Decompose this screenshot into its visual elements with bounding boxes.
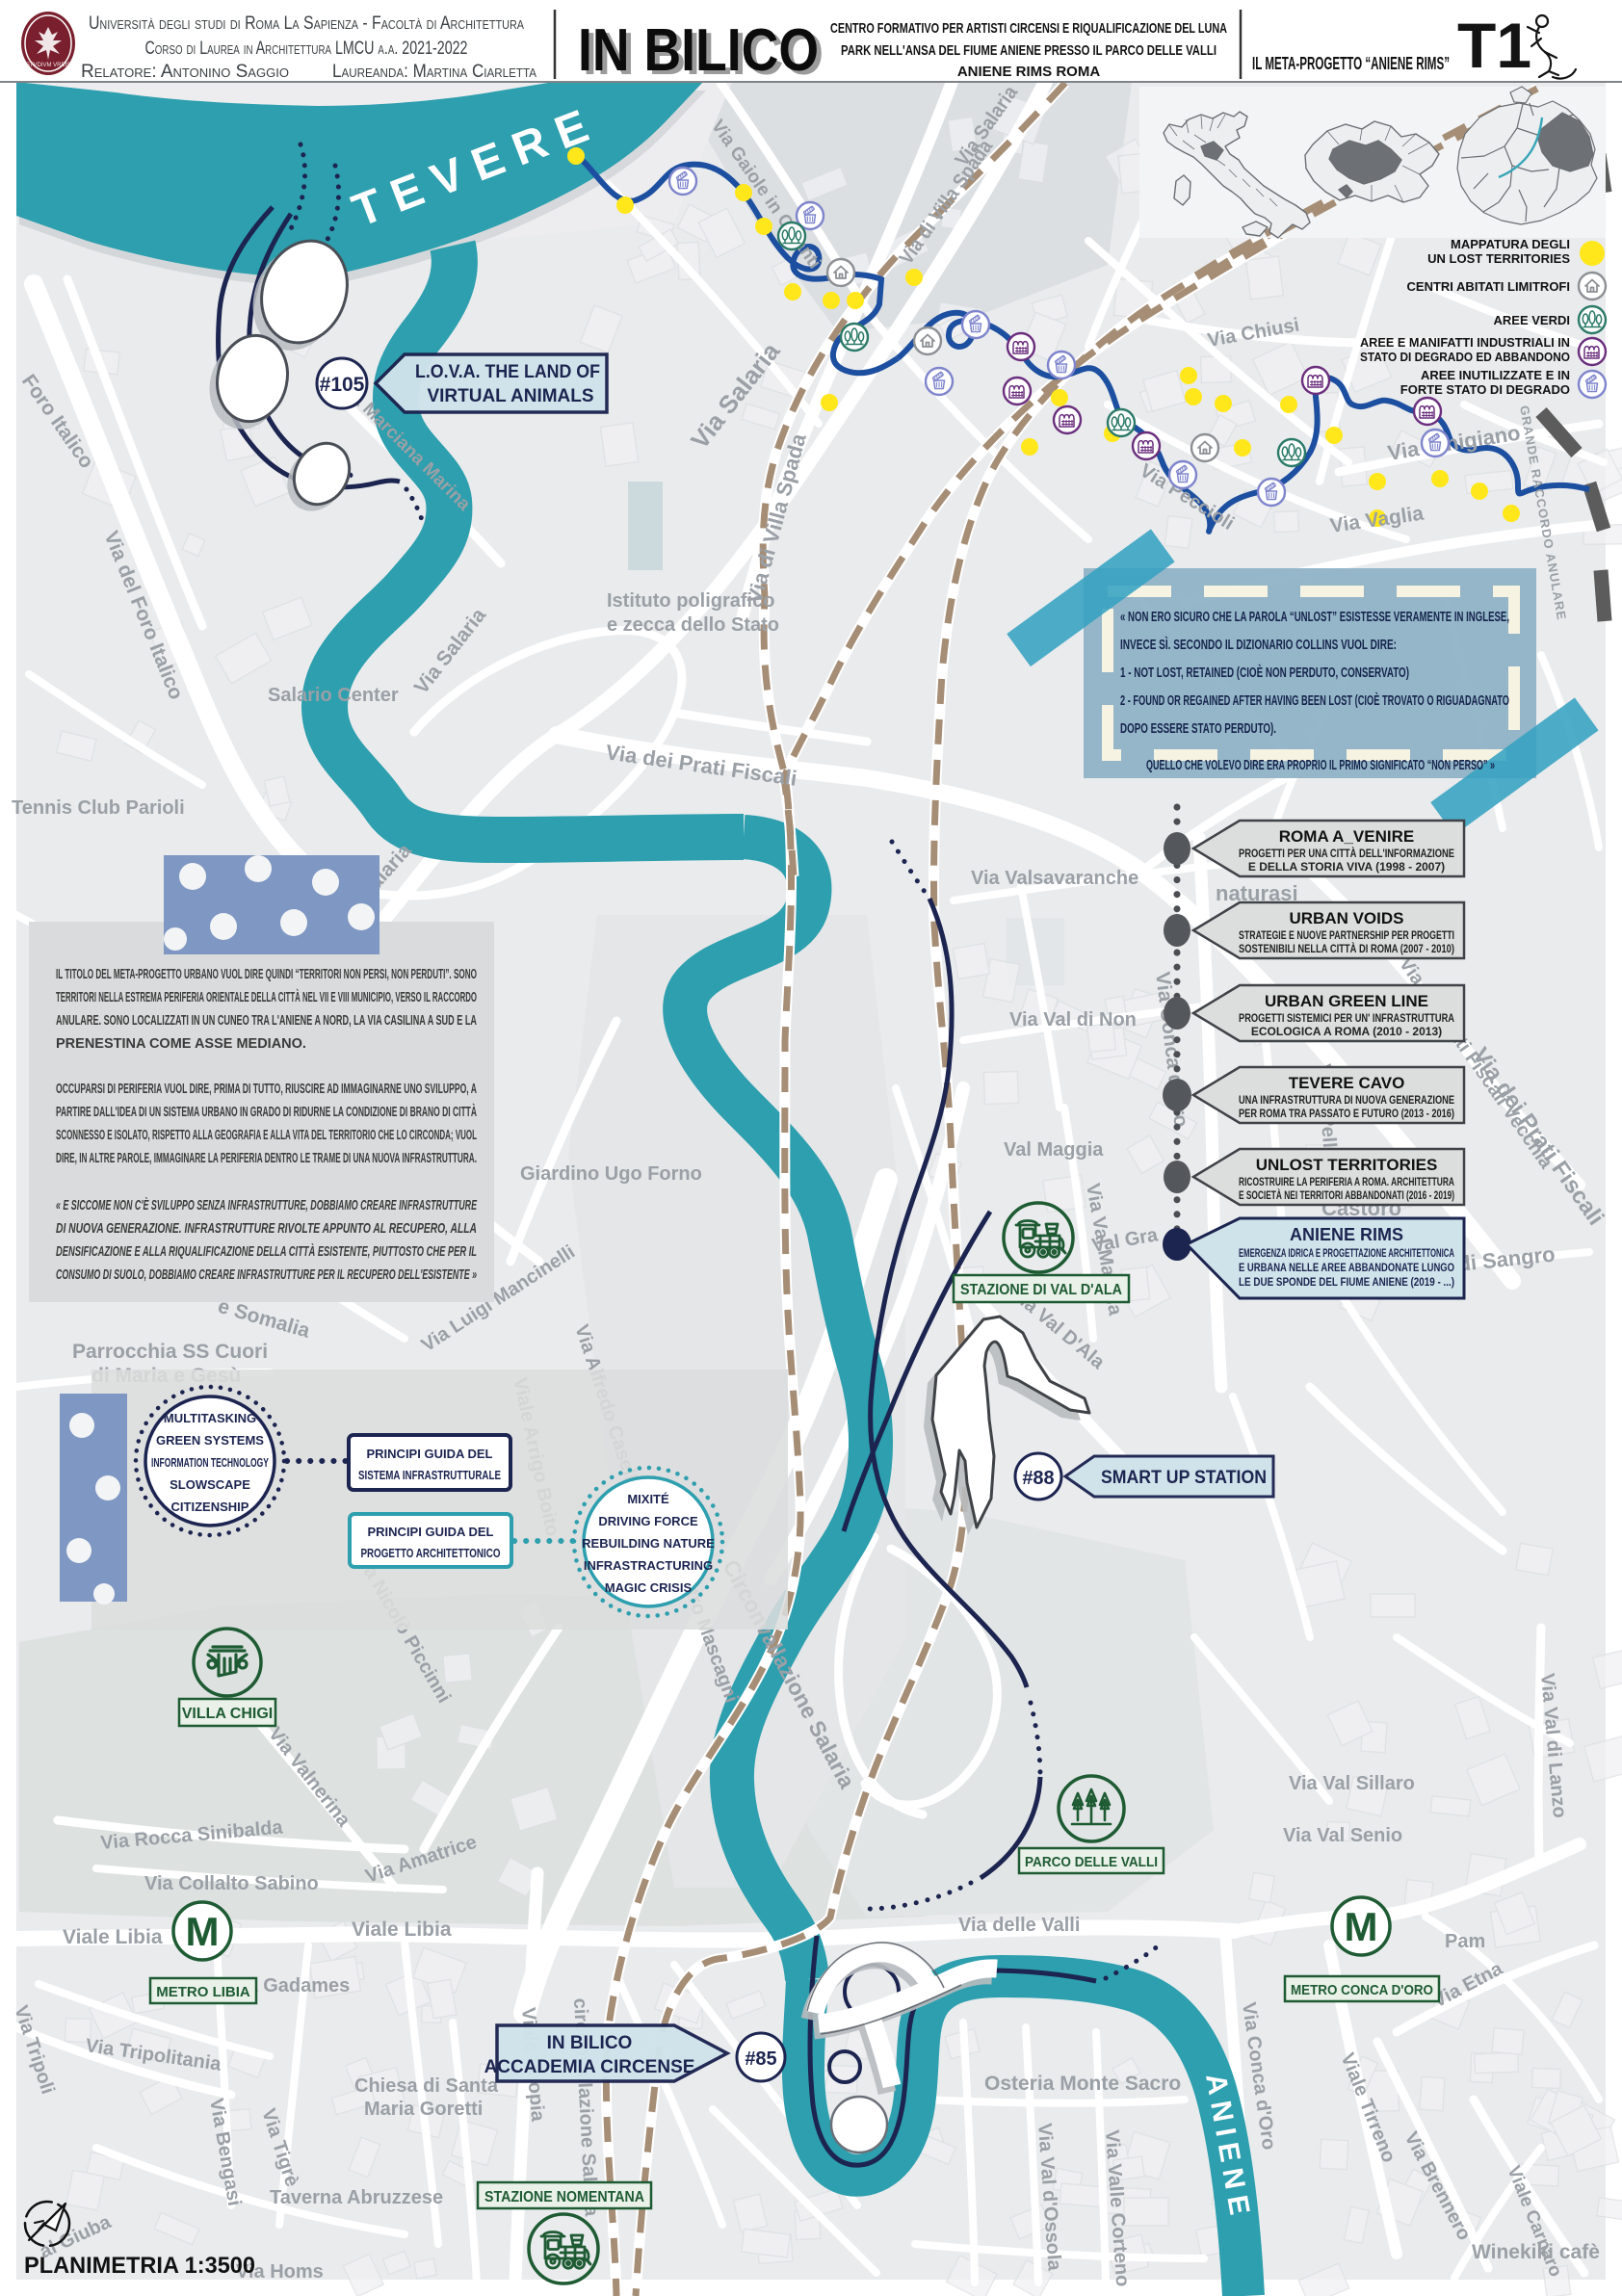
svg-text:T1: T1 <box>1457 10 1531 81</box>
svg-text:METRO LIBIA: METRO LIBIA <box>156 1984 250 2000</box>
svg-text:VILLA CHIGI: VILLA CHIGI <box>182 1706 274 1722</box>
svg-text:ANIENE RIMS: ANIENE RIMS <box>1290 1225 1403 1244</box>
svg-text:Via Val di Non: Via Val di Non <box>1009 1009 1137 1031</box>
svg-text:Via Valsavaranche: Via Valsavaranche <box>971 868 1138 889</box>
svg-text:SOSTENIBILI NELLA CITTÀ DI ROM: SOSTENIBILI NELLA CITTÀ DI ROMA (2007 - … <box>1239 941 1454 955</box>
svg-text:UNA INFRASTRUTTURA DI NUOVA GE: UNA INFRASTRUTTURA DI NUOVA GENERAZIONE <box>1239 1093 1454 1107</box>
svg-text:STAZIONE NOMENTANA: STAZIONE NOMENTANA <box>484 2189 644 2205</box>
svg-text:INFORMATION TECHNOLOGY: INFORMATION TECHNOLOGY <box>151 1455 269 1470</box>
svg-text:GREEN SYSTEMS: GREEN SYSTEMS <box>156 1433 264 1448</box>
svg-text:Chiesa di Santa: Chiesa di Santa <box>354 2075 499 2097</box>
svg-text:CENTRO FORMATIVO PER ARTISTI C: CENTRO FORMATIVO PER ARTISTI CIRCENSI E … <box>830 20 1227 37</box>
svg-text:FORTE STATO DI DEGRADO: FORTE STATO DI DEGRADO <box>1400 382 1570 397</box>
svg-text:ANIENE RIMS ROMA: ANIENE RIMS ROMA <box>957 64 1101 80</box>
svg-text:PLANIMETRIA 1:3500: PLANIMETRIA 1:3500 <box>24 2253 255 2279</box>
svg-text:ANULARE. SONO LOCALIZZATI IN U: ANULARE. SONO LOCALIZZATI IN UN CUNEO TR… <box>56 1013 477 1029</box>
svg-text:DIRE, IN ALTRE PAROLE, IMMAGIN: DIRE, IN ALTRE PAROLE, IMMAGINARE LA PER… <box>56 1151 477 1166</box>
svg-text:« E SICCOME NON C'È SVILUPPO: « E SICCOME NON C'È SVILUPPO SENZA INFRA… <box>56 1197 478 1213</box>
svg-text:IL META-PROGETTO “ANIENE RIMS”: IL META-PROGETTO “ANIENE RIMS” <box>1252 54 1450 73</box>
svg-text:PROGETTO ARCHITETTONICO: PROGETTO ARCHITETTONICO <box>361 1546 501 1560</box>
svg-text:UNLOST TERRITORIES: UNLOST TERRITORIES <box>1256 1156 1438 1174</box>
svg-text:« NON ERO SICURO CHE LA PAROL: « NON ERO SICURO CHE LA PAROLA “UNLOST” … <box>1120 610 1509 625</box>
svg-text:Winekiki cafè: Winekiki cafè <box>1472 2241 1600 2263</box>
svg-text:PRINCIPI GUIDA DEL: PRINCIPI GUIDA DEL <box>368 1525 494 1539</box>
svg-text:Pam: Pam <box>1445 1931 1485 1952</box>
svg-text:PARCO DELLE VALLI: PARCO DELLE VALLI <box>1025 1854 1158 1870</box>
svg-text:TERRITORI NELLA ESTREMA PERIFE: TERRITORI NELLA ESTREMA PERIFERIA ORIENT… <box>56 989 477 1005</box>
svg-text:URBAN VOIDS: URBAN VOIDS <box>1289 909 1403 927</box>
svg-text:MAGIC CRISIS: MAGIC CRISIS <box>605 1580 693 1595</box>
svg-text:E URBANA NELLE AREE ABBANDONAT: E URBANA NELLE AREE ABBANDONATE LUNGO <box>1239 1261 1454 1274</box>
svg-text:Istituto poligrafico: Istituto poligrafico <box>607 590 774 612</box>
svg-text:E DELLA STORIA VIVA (1998 - 20: E DELLA STORIA VIVA (1998 - 2007) <box>1248 860 1445 874</box>
svg-text:PARK NELL'ANSA DEL FIUME ANIEN: PARK NELL'ANSA DEL FIUME ANIENE PRESSO I… <box>841 42 1216 59</box>
svg-text:Taverna Abruzzese: Taverna Abruzzese <box>270 2187 443 2208</box>
svg-text:Val Maggia: Val Maggia <box>1004 1139 1104 1161</box>
svg-text:SISTEMA INFRASTRUTTURALE: SISTEMA INFRASTRUTTURALE <box>358 1468 501 1482</box>
svg-text:PRINCIPI GUIDA DEL: PRINCIPI GUIDA DEL <box>367 1447 493 1461</box>
svg-text:2 - FOUND OR REGAINED AFTER HA: 2 - FOUND OR REGAINED AFTER HAVING BEEN … <box>1120 692 1509 709</box>
svg-text:Tennis Club Parioli: Tennis Club Parioli <box>12 797 185 819</box>
svg-text:STATO DI DEGRADO ED ABBANDONO: STATO DI DEGRADO ED ABBANDONO <box>1360 350 1570 364</box>
svg-text:IN BILICO: IN BILICO <box>578 17 819 84</box>
svg-text:INVECE SÌ. SECONDO IL DIZIONAR: INVECE SÌ. SECONDO IL DIZIONARIO COLLINS… <box>1120 637 1397 653</box>
svg-text:METRO CONCA D'ORO: METRO CONCA D'ORO <box>1291 1982 1433 1998</box>
svg-text:EMERGENZA IDRICA E PROGETTAZIO: EMERGENZA IDRICA E PROGETTAZIONE ARCHITE… <box>1239 1246 1454 1260</box>
svg-text:Via Val Senio: Via Val Senio <box>1283 1825 1402 1846</box>
svg-text:Viale Libia: Viale Libia <box>352 1918 452 1941</box>
svg-text:MAPPATURA DEGLI: MAPPATURA DEGLI <box>1451 237 1570 251</box>
svg-text:UN LOST TERRITORIES: UN LOST TERRITORIES <box>1427 251 1570 266</box>
svg-text:Parrocchia SS Cuori: Parrocchia SS Cuori <box>72 1341 268 1363</box>
svg-text:STAZIONE DI VAL D'ALA: STAZIONE DI VAL D'ALA <box>960 1282 1122 1298</box>
svg-text:Corso di Laurea in Architettur: Corso di Laurea in Architettura LMCU a.a… <box>145 39 468 59</box>
svg-text:L.O.V.A. THE LAND OF: L.O.V.A. THE LAND OF <box>415 362 600 382</box>
svg-text:TEVERE CAVO: TEVERE CAVO <box>1289 1074 1405 1092</box>
svg-text:AREE VERDI: AREE VERDI <box>1494 313 1570 327</box>
svg-text:MULTITASKING: MULTITASKING <box>164 1411 256 1425</box>
svg-text:Via delle Valli: Via delle Valli <box>958 1915 1080 1936</box>
svg-text:Via Collalto Sabino: Via Collalto Sabino <box>144 1873 319 1894</box>
svg-text:M: M <box>1345 1904 1378 1949</box>
svg-text:AREE E MANIFATTI INDUSTRIALI I: AREE E MANIFATTI INDUSTRIALI IN <box>1360 335 1570 350</box>
svg-text:SLOWSCAPE: SLOWSCAPE <box>170 1477 250 1492</box>
svg-text:PROGETTI SISTEMICI PER UN' INF: PROGETTI SISTEMICI PER UN' INFRASTRUTTUR… <box>1239 1011 1454 1025</box>
svg-text:ECOLOGICA A ROMA (2010 - 2013): ECOLOGICA A ROMA (2010 - 2013) <box>1251 1025 1442 1038</box>
svg-text:DOPO ESSERE STATO PERDUTO).: DOPO ESSERE STATO PERDUTO). <box>1120 721 1276 737</box>
svg-text:URBAN GREEN LINE: URBAN GREEN LINE <box>1265 992 1428 1010</box>
svg-text:CENTRI ABITATI LIMITROFI: CENTRI ABITATI LIMITROFI <box>1407 279 1570 294</box>
svg-text:e zecca dello Stato: e zecca dello Stato <box>607 614 779 636</box>
svg-text:OCCUPARSI DI PERIFERIA VUOL DI: OCCUPARSI DI PERIFERIA VUOL DIRE, PRIMA … <box>56 1082 477 1097</box>
svg-text:LE DUE SPONDE DEL FIUME ANIENE: LE DUE SPONDE DEL FIUME ANIENE (2019 - .… <box>1239 1275 1454 1289</box>
svg-text:DI NUOVA GENERAZIONE. INFRASTR: DI NUOVA GENERAZIONE. INFRASTRUTTURE RIV… <box>56 1221 477 1237</box>
svg-text:RICOSTRUIRE LA PERIFERIA A ROM: RICOSTRUIRE LA PERIFERIA A ROMA. ARCHITE… <box>1239 1175 1454 1188</box>
svg-text:Maria Goretti: Maria Goretti <box>364 2099 483 2120</box>
svg-text:SCONNESSO E ISOLATO, RISPETTO: SCONNESSO E ISOLATO, RISPETTO ALLA GEOGR… <box>56 1128 477 1143</box>
svg-text:QUELLO CHE VOLEVO DIRE ERA PRO: QUELLO CHE VOLEVO DIRE ERA PROPRIO IL PR… <box>1146 758 1495 773</box>
svg-text:PARTIRE DALL'IDEA DI UN SISTEM: PARTIRE DALL'IDEA DI UN SISTEMA URBANO I… <box>56 1104 477 1120</box>
svg-text:PROGETTI PER UNA CITTÀ DELL'IN: PROGETTI PER UNA CITTÀ DELL'INFORMAZIONE <box>1239 846 1454 860</box>
svg-text:INFRASTRACTURING: INFRASTRACTURING <box>584 1558 713 1573</box>
svg-text:CITIZENSHIP: CITIZENSHIP <box>171 1500 249 1514</box>
svg-text:1 - NOT LOST, RETAINED (CIOÈ N: 1 - NOT LOST, RETAINED (CIOÈ NON PERDUTO… <box>1120 665 1409 681</box>
svg-text:DENSIFICAZIONE E ALLA RIQUALIF: DENSIFICAZIONE E ALLA RIQUALIFICAZIONE D… <box>56 1243 477 1260</box>
svg-text:Giardino Ugo Forno: Giardino Ugo Forno <box>520 1163 702 1185</box>
svg-text:AREE INUTILIZZATE E IN: AREE INUTILIZZATE E IN <box>1421 368 1570 382</box>
svg-text:E SOCIETÀ NEI TERRITORI ABBAND: E SOCIETÀ NEI TERRITORI ABBANDONATI (201… <box>1239 1187 1454 1202</box>
svg-text:STRATEGIE E NUOVE PARTNERSHIP: STRATEGIE E NUOVE PARTNERSHIP PER PROGET… <box>1239 928 1454 942</box>
svg-text:#105: #105 <box>320 374 365 396</box>
svg-text:Viale Libia: Viale Libia <box>63 1926 163 1948</box>
svg-text:ROMA A_VENIRE: ROMA A_VENIRE <box>1279 827 1414 846</box>
svg-text:Osteria Monte Sacro: Osteria Monte Sacro <box>984 2073 1181 2095</box>
svg-text:MIXITÉ: MIXITÉ <box>627 1492 669 1506</box>
svg-text:PER ROMA TRA PASSATO E FUTURO: PER ROMA TRA PASSATO E FUTURO (2013 - 20… <box>1239 1107 1454 1120</box>
svg-text:IL TITOLO DEL META-PROGETTO UR: IL TITOLO DEL META-PROGETTO URBANO VUOL … <box>56 967 477 982</box>
svg-text:Relatore: Antonino Saggio: Relatore: Antonino Saggio <box>81 62 289 82</box>
svg-text:PRENESTINA COME ASSE MEDIANO.: PRENESTINA COME ASSE MEDIANO. <box>56 1036 306 1052</box>
svg-text:ACCADEMIA CIRCENSE: ACCADEMIA CIRCENSE <box>484 2057 695 2077</box>
svg-text:#88: #88 <box>1022 1468 1054 1489</box>
svg-text:VIRTUAL ANIMALS: VIRTUAL ANIMALS <box>427 386 593 406</box>
svg-text:SMART UP STATION: SMART UP STATION <box>1101 1468 1267 1488</box>
svg-text:Università degli studi di Roma: Università degli studi di Roma La Sapien… <box>89 13 524 34</box>
svg-text:DRIVING FORCE: DRIVING FORCE <box>598 1514 698 1528</box>
svg-text:STVDIVM VRBIS: STVDIVM VRBIS <box>26 63 70 68</box>
svg-text:IN BILICO: IN BILICO <box>547 2033 633 2053</box>
svg-text:Salario Center: Salario Center <box>268 685 399 706</box>
svg-text:CONSUMO DI SUOLO, DOBBIAMO CRE: CONSUMO DI SUOLO, DOBBIAMO CREARE INFRAS… <box>56 1267 477 1283</box>
svg-text:REBUILDING NATURE: REBUILDING NATURE <box>582 1536 715 1551</box>
svg-text:#85: #85 <box>745 2048 776 2070</box>
svg-text:Laureanda: Martina Ciarletta: Laureanda: Martina Ciarletta <box>332 62 536 82</box>
svg-text:M: M <box>186 1909 220 1954</box>
svg-text:Via Val Sillaro: Via Val Sillaro <box>1289 1773 1415 1794</box>
